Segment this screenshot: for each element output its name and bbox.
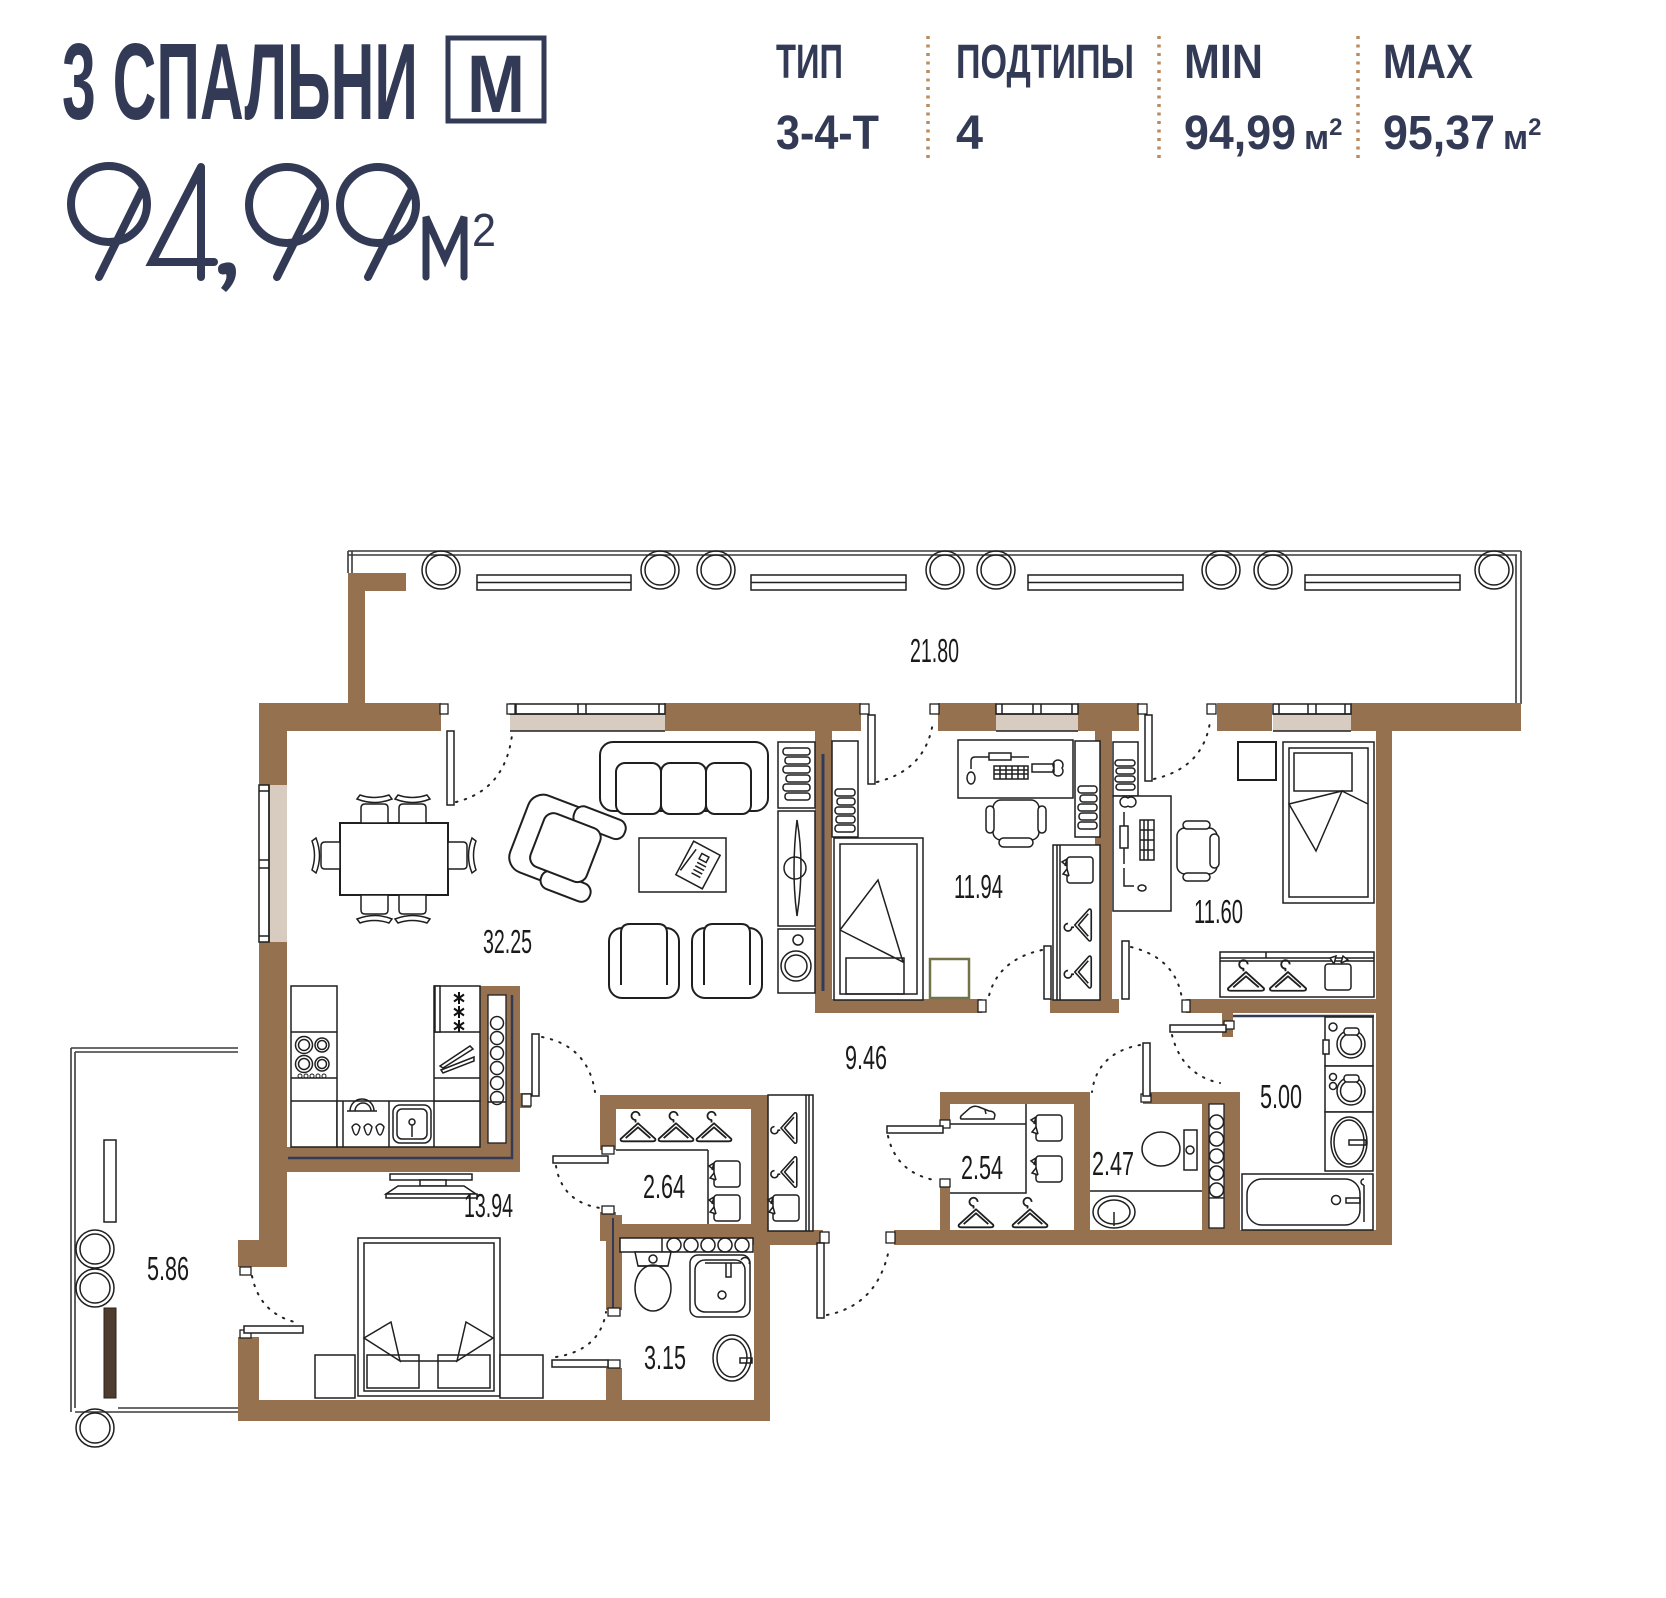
svg-text:5.86: 5.86 (147, 1250, 189, 1287)
svg-text:9.46: 9.46 (845, 1039, 887, 1076)
svg-text:32.25: 32.25 (483, 923, 532, 960)
svg-text:11.94: 11.94 (954, 868, 1003, 905)
svg-text:ТИП: ТИП (776, 36, 843, 89)
svg-text:3 СПАЛЬНИ: 3 СПАЛЬНИ (62, 21, 418, 143)
svg-text:5.00: 5.00 (1260, 1078, 1302, 1115)
svg-text:21.80: 21.80 (910, 632, 959, 669)
svg-text:ПОДТИПЫ: ПОДТИПЫ (956, 36, 1134, 89)
svg-text:MIN: MIN (1184, 36, 1263, 89)
svg-text:2: 2 (472, 204, 496, 256)
svg-text:13.94: 13.94 (464, 1187, 513, 1224)
svg-text:3.15: 3.15 (644, 1339, 686, 1376)
svg-text:MAX: MAX (1383, 36, 1473, 89)
svg-text:М: М (467, 39, 525, 130)
svg-text:2.64: 2.64 (643, 1168, 685, 1205)
svg-text:3-4-Т: 3-4-Т (776, 107, 879, 160)
svg-text:2.47: 2.47 (1092, 1145, 1134, 1182)
svg-text:4: 4 (956, 107, 983, 160)
svg-text:11.60: 11.60 (1194, 893, 1243, 930)
svg-text:2.54: 2.54 (961, 1149, 1003, 1186)
